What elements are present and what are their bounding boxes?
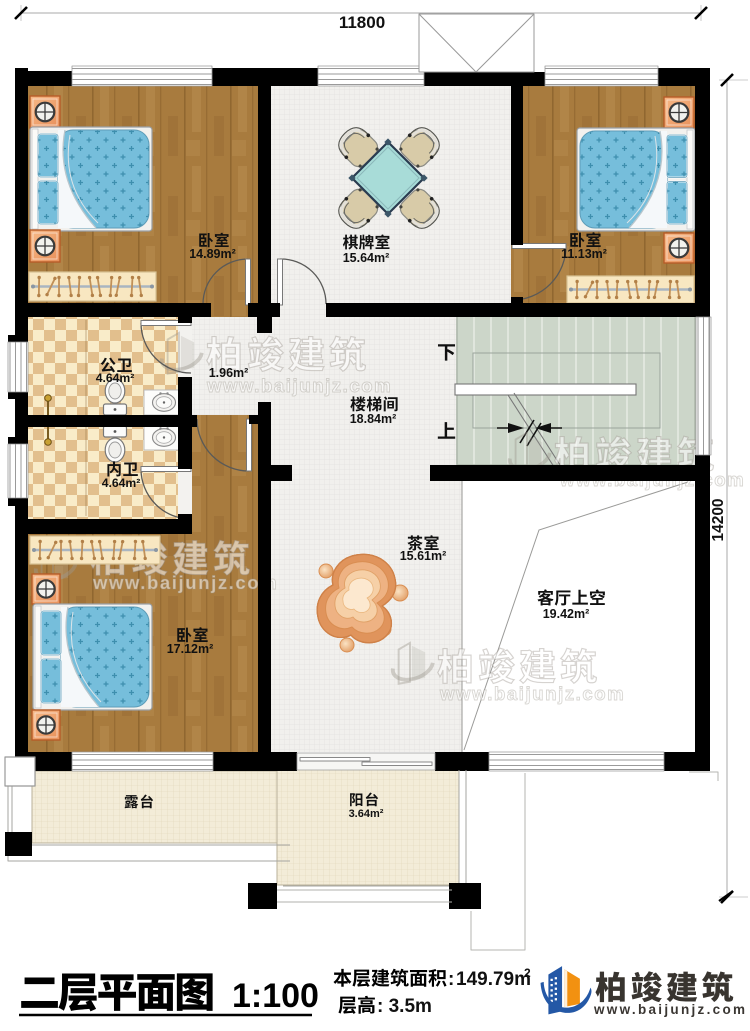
svg-text:19.42m²: 19.42m² <box>543 607 590 621</box>
svg-text:: 3.5m: : 3.5m <box>377 996 432 1017</box>
svg-text:4.64m²: 4.64m² <box>102 476 141 490</box>
svg-text:14.89m²: 14.89m² <box>189 247 236 261</box>
svg-text:www.baijunjz.com: www.baijunjz.com <box>92 572 278 593</box>
svg-text:www.baijunjz.com: www.baijunjz.com <box>593 1002 747 1017</box>
svg-text:15.64m²: 15.64m² <box>343 251 390 265</box>
svg-text::: : <box>448 969 454 990</box>
svg-text:1:100: 1:100 <box>232 977 319 1015</box>
svg-text:149.79m: 149.79m <box>456 969 531 990</box>
svg-text:15.61m²: 15.61m² <box>400 549 447 563</box>
svg-text:11800: 11800 <box>339 13 385 32</box>
svg-text:4.64m²: 4.64m² <box>96 371 135 385</box>
svg-text:18.84m²: 18.84m² <box>350 412 397 426</box>
svg-text:3.64m²: 3.64m² <box>349 808 384 820</box>
svg-text:14200: 14200 <box>710 498 727 541</box>
svg-text:1.96m²: 1.96m² <box>209 366 249 380</box>
svg-text:www.baijunjz.com: www.baijunjz.com <box>439 683 625 704</box>
svg-text:11.13m²: 11.13m² <box>561 247 607 261</box>
svg-text:2: 2 <box>524 966 531 980</box>
svg-text:17.12m²: 17.12m² <box>167 642 214 656</box>
